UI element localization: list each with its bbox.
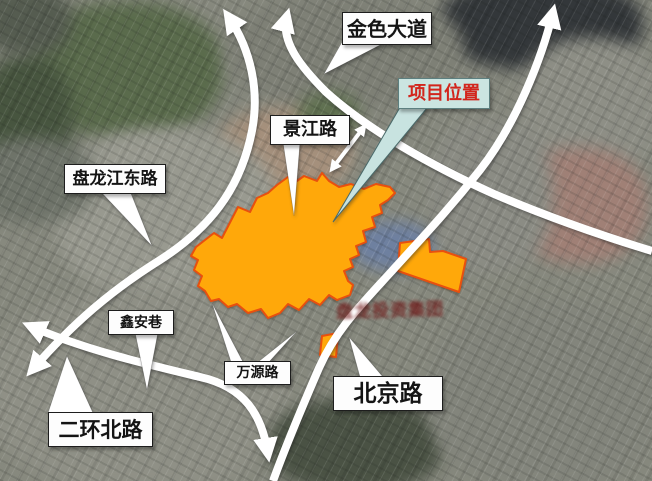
label-erhuan-beilu: 二环北路	[48, 412, 153, 447]
label-project-location: 项目位置	[398, 78, 490, 109]
annotation-layer	[0, 0, 652, 481]
label-panlongjiang-donglu: 盘龙江东路	[64, 164, 166, 194]
label-jingjiang-lu: 景江路	[270, 115, 350, 145]
pointer-wanyuan-lu-east	[258, 331, 297, 362]
pointer-jinse-dadao	[324, 42, 382, 74]
label-jinse-dadao: 金色大道	[342, 12, 432, 45]
pointer-beijing-lu	[349, 337, 383, 377]
watermark-text: 盘龙投资集团	[336, 295, 445, 323]
pointer-panlongjiang-donglu	[100, 191, 152, 246]
label-wanyuan-lu: 万源路	[224, 361, 291, 385]
site-parcel-east	[398, 239, 466, 292]
label-beijing-lu: 北京路	[333, 376, 443, 411]
pointer-erhuan-beilu	[48, 356, 93, 413]
label-xinan-xiang: 鑫安巷	[108, 310, 174, 335]
location-map: 金色大道 项目位置 景江路 盘龙江东路 鑫安巷 万源路 北京路 二环北路 盘龙投…	[0, 0, 652, 481]
pointer-wanyuan-lu-west	[212, 303, 243, 362]
